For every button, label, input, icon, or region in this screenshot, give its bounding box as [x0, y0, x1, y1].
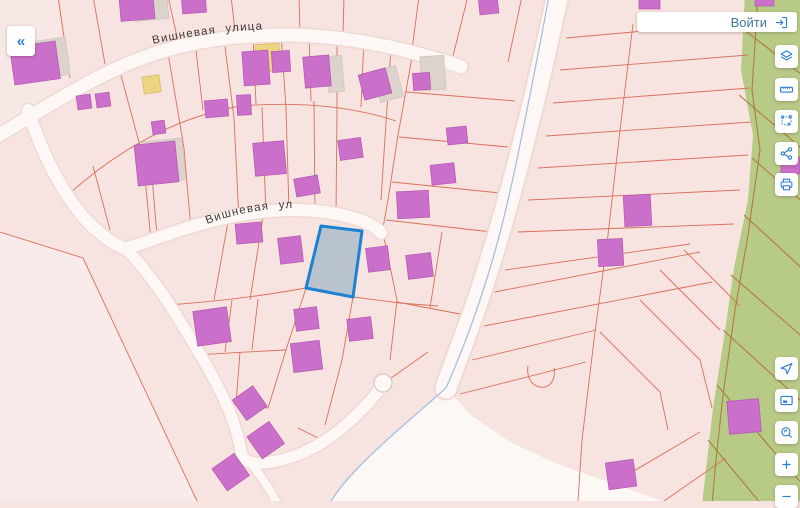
zoom-in-button[interactable]	[775, 453, 798, 476]
login-label: Войти	[731, 15, 767, 30]
locate-button[interactable]	[775, 357, 798, 380]
search-area-button[interactable]	[775, 421, 798, 444]
collapse-panel-button[interactable]: «	[7, 26, 35, 56]
login-button[interactable]: Войти	[637, 12, 797, 32]
login-arrow-icon	[774, 15, 789, 30]
print-icon	[779, 177, 794, 192]
ruler-button[interactable]	[775, 78, 798, 101]
minimap-button[interactable]	[775, 389, 798, 412]
locate-icon	[779, 361, 794, 376]
ruler-icon	[779, 82, 794, 97]
print-button[interactable]	[775, 173, 798, 196]
zoom-out-button[interactable]	[775, 485, 798, 508]
zoom-in-icon	[779, 457, 794, 472]
collapse-panel-label: «	[17, 33, 25, 50]
select-area-button[interactable]	[775, 110, 798, 133]
map-canvas[interactable]: Вишневая улица Вишневая улица	[0, 0, 800, 501]
share-icon	[779, 146, 794, 161]
select-area-icon	[779, 114, 794, 129]
layers-icon	[779, 49, 794, 64]
cul-de-sac	[374, 374, 392, 392]
share-button[interactable]	[775, 142, 798, 165]
layers-button[interactable]	[775, 45, 798, 68]
search-area-icon	[779, 425, 794, 440]
minimap-icon	[779, 393, 794, 408]
zoom-out-icon	[779, 489, 794, 504]
